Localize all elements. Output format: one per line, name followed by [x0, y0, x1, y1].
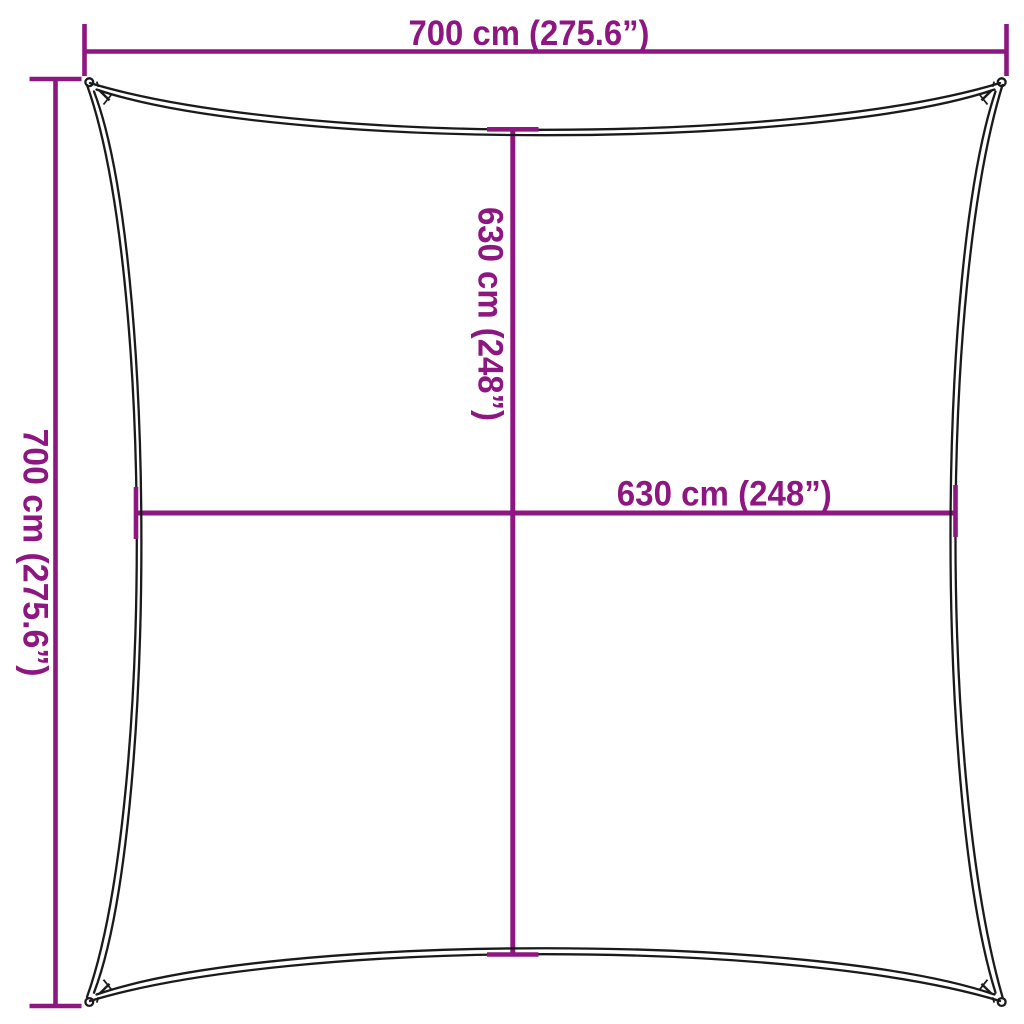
svg-text:630 cm (248”): 630 cm (248”) — [471, 207, 510, 421]
svg-text:700 cm (275.6”): 700 cm (275.6”) — [16, 429, 55, 677]
svg-text:700 cm (275.6”): 700 cm (275.6”) — [409, 14, 650, 53]
svg-text:630 cm (248”): 630 cm (248”) — [617, 475, 832, 514]
